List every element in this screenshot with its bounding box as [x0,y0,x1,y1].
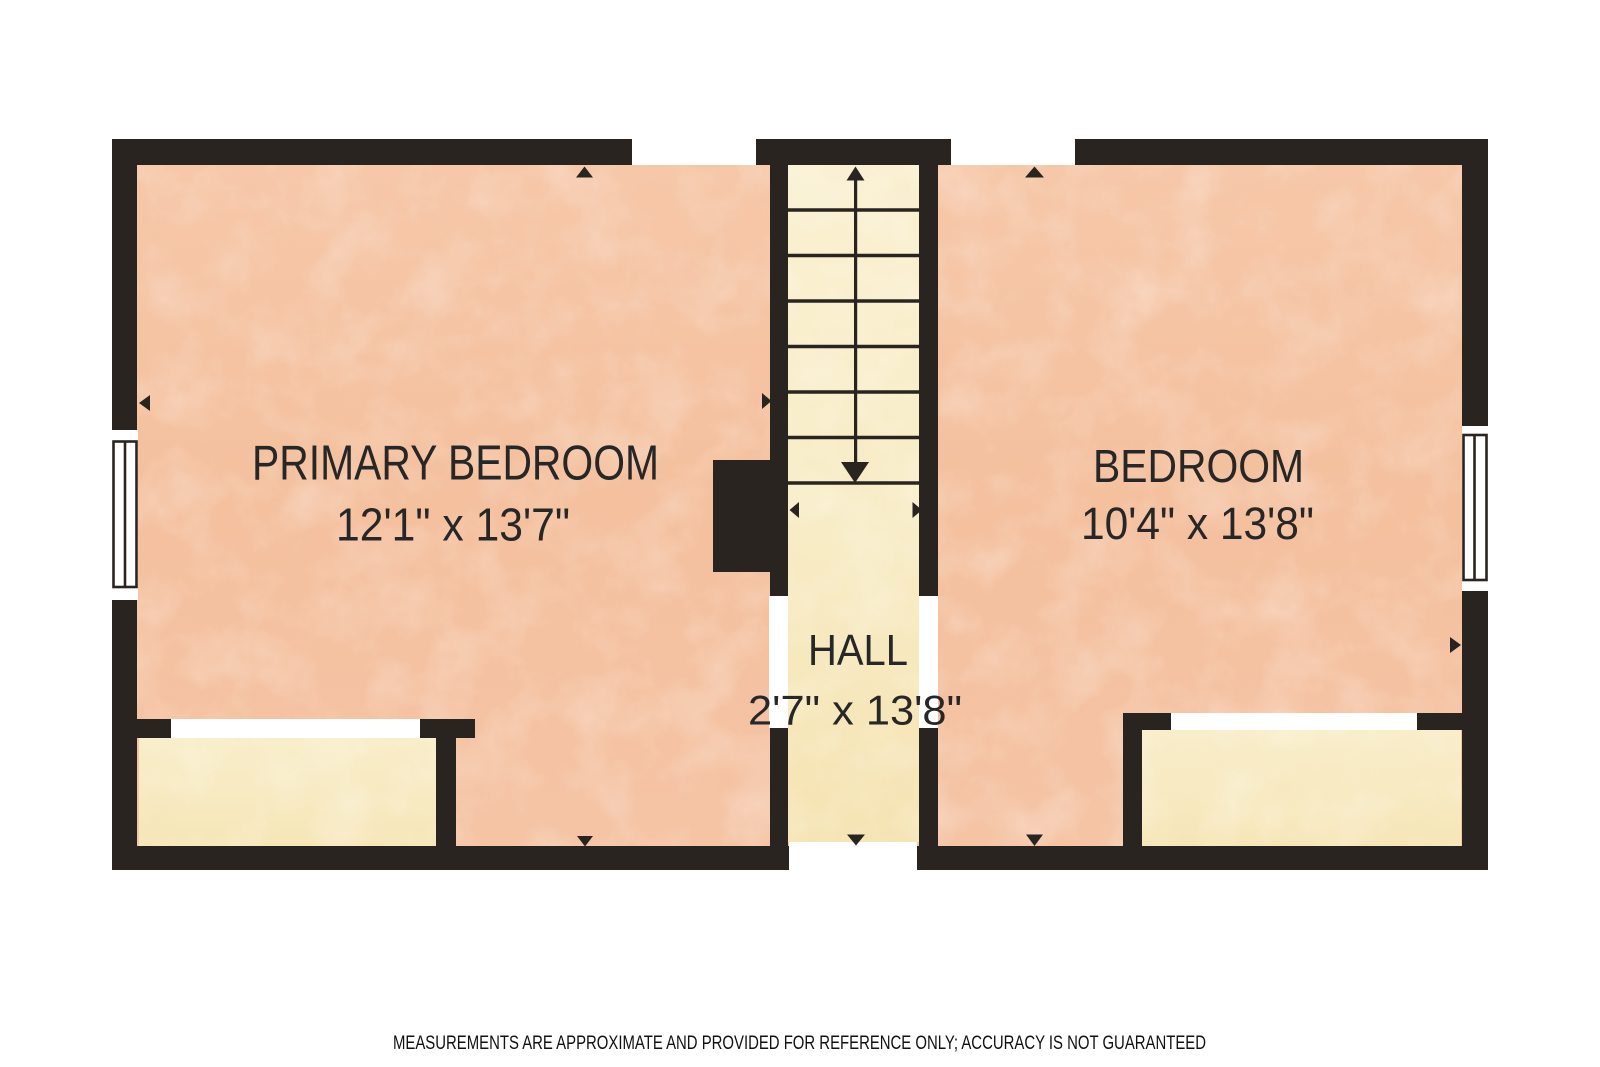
svg-text:PRIMARY BEDROOM: PRIMARY BEDROOM [252,436,659,490]
svg-text:BEDROOM: BEDROOM [1093,440,1304,492]
svg-text:10'4" x 13'8": 10'4" x 13'8" [1081,498,1314,549]
svg-text:HALL: HALL [808,627,908,675]
svg-text:MEASUREMENTS ARE APPROXIMATE A: MEASUREMENTS ARE APPROXIMATE AND PROVIDE… [393,1033,1206,1054]
svg-text:2'7" x 13'8": 2'7" x 13'8" [748,687,962,734]
svg-text:12'1" x 13'7": 12'1" x 13'7" [336,499,570,551]
